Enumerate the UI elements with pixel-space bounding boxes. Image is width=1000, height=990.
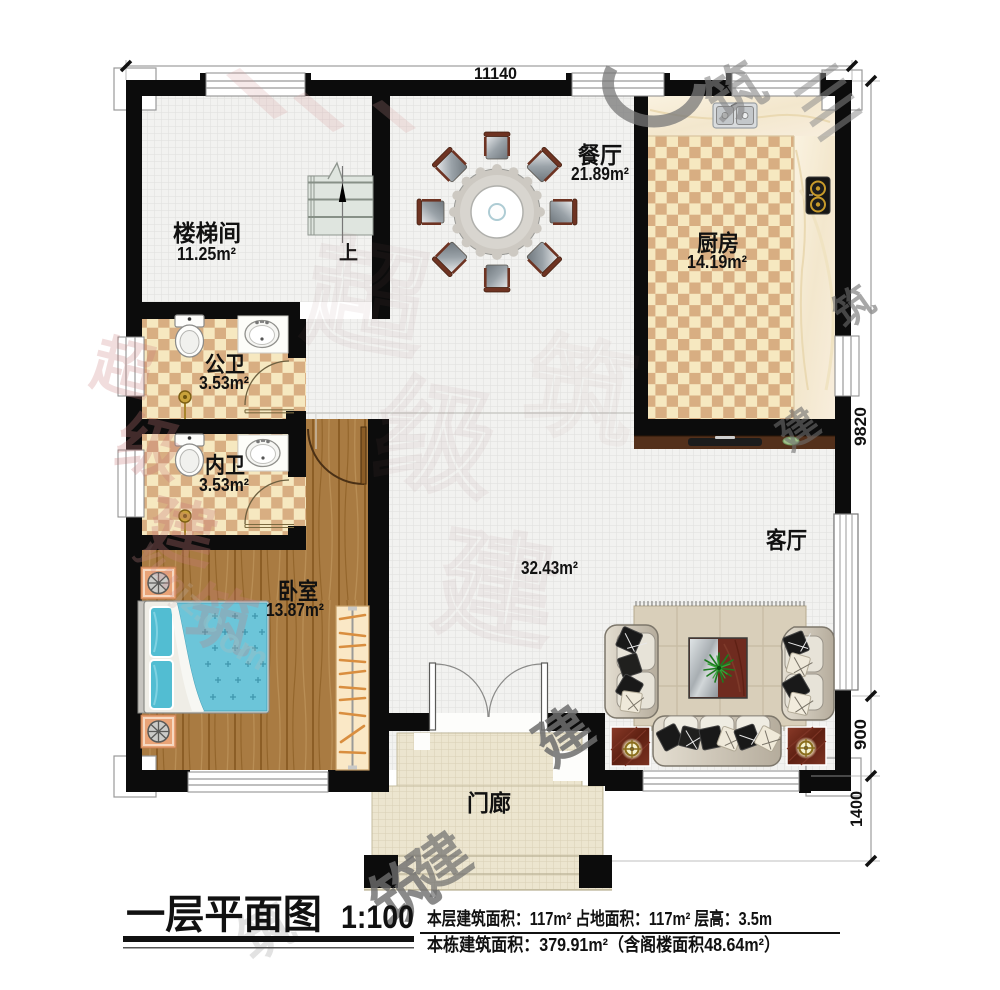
svg-text:超: 超 xyxy=(295,224,437,377)
svg-text:建: 建 xyxy=(425,514,566,667)
svg-text:门廊: 门廊 xyxy=(467,790,511,816)
svg-text:9820: 9820 xyxy=(851,407,870,446)
svg-text:13.87m²: 13.87m² xyxy=(266,600,324,620)
svg-text:客厅: 客厅 xyxy=(766,527,807,553)
svg-text:3.53m²: 3.53m² xyxy=(199,475,249,495)
svg-text:1400: 1400 xyxy=(847,791,866,827)
svg-text:11140: 11140 xyxy=(474,64,517,83)
svg-text:楼梯间: 楼梯间 xyxy=(173,220,241,246)
svg-text:32.43m²: 32.43m² xyxy=(521,558,578,578)
svg-text:1:100: 1:100 xyxy=(341,899,414,935)
svg-text:14.19m²: 14.19m² xyxy=(687,252,747,272)
svg-text:11.25m²: 11.25m² xyxy=(177,244,236,264)
svg-text:本栋建筑面积：379.91m²（含阁楼面积48.64m²）: 本栋建筑面积：379.91m²（含阁楼面积48.64m²） xyxy=(427,934,780,955)
svg-text:一层平面图: 一层平面图 xyxy=(126,893,322,937)
svg-text:3.53m²: 3.53m² xyxy=(199,373,249,393)
svg-text:筑: 筑 xyxy=(516,323,646,463)
svg-text:900: 900 xyxy=(851,719,870,750)
svg-text:级: 级 xyxy=(365,364,506,517)
svg-text:本层建筑面积：117m² 占地面积：117m² 层高：3: 本层建筑面积：117m² 占地面积：117m² 层高：3.5m xyxy=(427,908,772,929)
svg-text:21.89m²: 21.89m² xyxy=(571,164,629,184)
